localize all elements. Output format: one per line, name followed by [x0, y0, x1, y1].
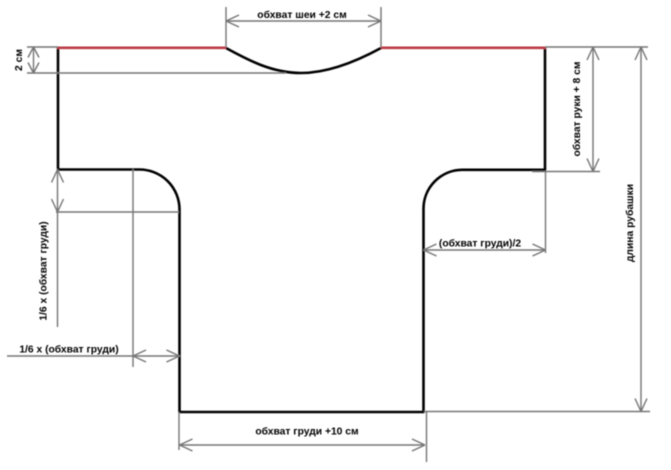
svg-text:2 см: 2 см [14, 49, 25, 71]
svg-text:1/6 х (обхват груди): 1/6 х (обхват груди) [19, 344, 118, 356]
svg-text:обхват руки + 8 см: обхват руки + 8 см [571, 62, 583, 157]
svg-text:1/6 х (обхват груди): 1/6 х (обхват груди) [38, 221, 50, 320]
svg-text:(обхват груди)/2: (обхват груди)/2 [439, 238, 521, 250]
svg-text:длина рубашки: длина рубашки [624, 184, 636, 262]
svg-text:обхват шеи +2 см: обхват шеи +2 см [257, 9, 346, 21]
svg-text:обхват груди +10 см: обхват груди +10 см [255, 426, 358, 438]
